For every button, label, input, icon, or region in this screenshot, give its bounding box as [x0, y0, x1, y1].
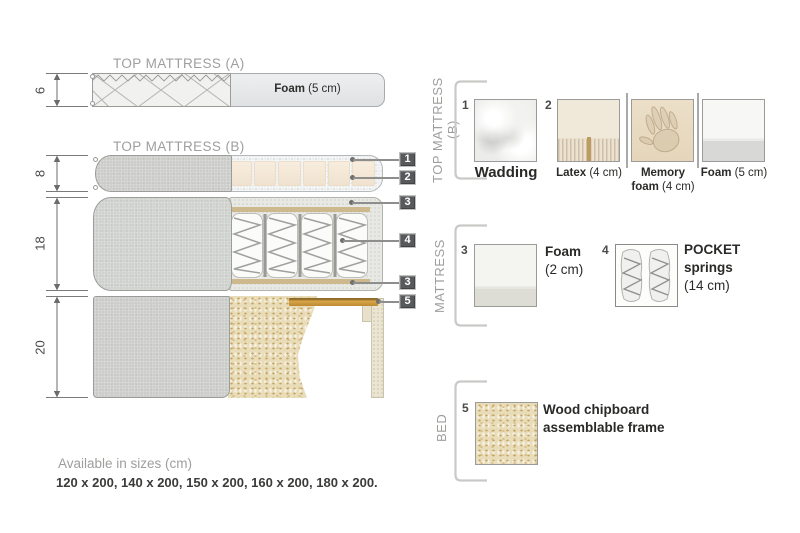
dim-18-value: 18	[33, 229, 48, 259]
mattress-fabric-cover	[93, 197, 232, 291]
callout-label-1: 1	[399, 152, 416, 167]
legend-item-7-number: 5	[462, 401, 469, 415]
foam-2cm-swatch	[474, 244, 537, 307]
footer-sizes-list: 120 x 200, 140 x 200, 150 x 200, 160 x 2…	[56, 475, 378, 490]
callout-label-5: 5	[399, 294, 416, 309]
mattress-b-latex-blocks	[229, 161, 375, 186]
pocket-springs-illustration	[615, 244, 678, 307]
mattress-b-wadding-wrap	[222, 155, 383, 192]
legend-section-top-mattress-b-label: TOP MATTRESS (B)	[430, 68, 448, 192]
bed-wood-slat	[289, 298, 378, 306]
seam-dot	[90, 101, 95, 106]
legend-item-4-caption: Foam (5 cm)	[688, 166, 780, 180]
mattress-a-quilted-cover	[92, 73, 231, 107]
legend-item-1-caption: Wadding	[458, 164, 554, 181]
callout-label-2: 2	[399, 170, 416, 185]
top-mattress-b-title: TOP MATTRESS (B)	[113, 139, 245, 154]
callout-label-4: 4	[399, 233, 416, 248]
dim-20-arrow	[51, 296, 63, 398]
mattress-pocket-springs	[230, 207, 370, 284]
seam-dot	[93, 185, 98, 190]
dim-6-value: 6	[33, 76, 48, 106]
legend-section-mattress-label: MATTRESS	[432, 228, 450, 324]
callout-line-3b	[353, 282, 399, 284]
memory-foam-hand-imprint	[631, 99, 694, 162]
callout-line-1	[353, 159, 399, 161]
mattress-construction-diagram: TOP MATTRESS (A) 6 Foam (5 cm) TOP MATTR…	[0, 0, 800, 533]
footer-sizes-title: Available in sizes (cm)	[58, 456, 192, 471]
mattress-a-foam-label: Foam (5 cm)	[231, 83, 384, 95]
dim-20-value: 20	[33, 333, 48, 363]
dim-8-value: 8	[33, 159, 48, 189]
legend-item-7-caption: Wood chipboard assemblable frame	[543, 401, 665, 437]
callout-line-3	[352, 202, 399, 204]
legend-item-2-number: 2	[545, 98, 552, 112]
legend-item-6-number: 4	[602, 243, 609, 257]
latex-swatch	[557, 99, 620, 162]
chipboard-swatch	[475, 402, 538, 465]
legend-item-5-caption: Foam(2 cm)	[545, 243, 583, 279]
bed-fabric-cover	[93, 296, 230, 398]
legend-divider-1	[626, 93, 628, 168]
callout-label-3: 3	[399, 195, 416, 210]
callout-line-2	[353, 177, 399, 179]
bed-frame-bracket	[362, 306, 372, 322]
seam-dot	[93, 157, 98, 162]
legend-item-5-number: 3	[461, 243, 468, 257]
bed-chipboard-cutaway	[228, 296, 320, 398]
mattress-a-foam-body: Foam (5 cm)	[230, 73, 385, 107]
mattress-b-fabric-cover	[95, 155, 232, 192]
wadding-swatch	[474, 99, 537, 162]
callout-line-4	[343, 240, 399, 242]
dim-18-arrow	[51, 197, 63, 291]
bed-frame-leg	[371, 298, 384, 398]
seam-dot	[90, 74, 95, 79]
legend-item-6-caption: POCKET springs (14 cm)	[684, 241, 740, 295]
dim-8-arrow	[51, 155, 63, 192]
callout-label-3b: 3	[399, 275, 416, 290]
callout-line-5	[379, 301, 399, 303]
legend-item-1-number: 1	[462, 98, 469, 112]
foam-5cm-swatch	[702, 99, 765, 162]
top-mattress-a-title: TOP MATTRESS (A)	[113, 56, 245, 71]
dim-6-arrow	[51, 73, 63, 107]
legend-divider-2	[697, 93, 699, 168]
legend-section-bed-label: BED	[434, 400, 452, 456]
latex-slit	[587, 137, 591, 161]
